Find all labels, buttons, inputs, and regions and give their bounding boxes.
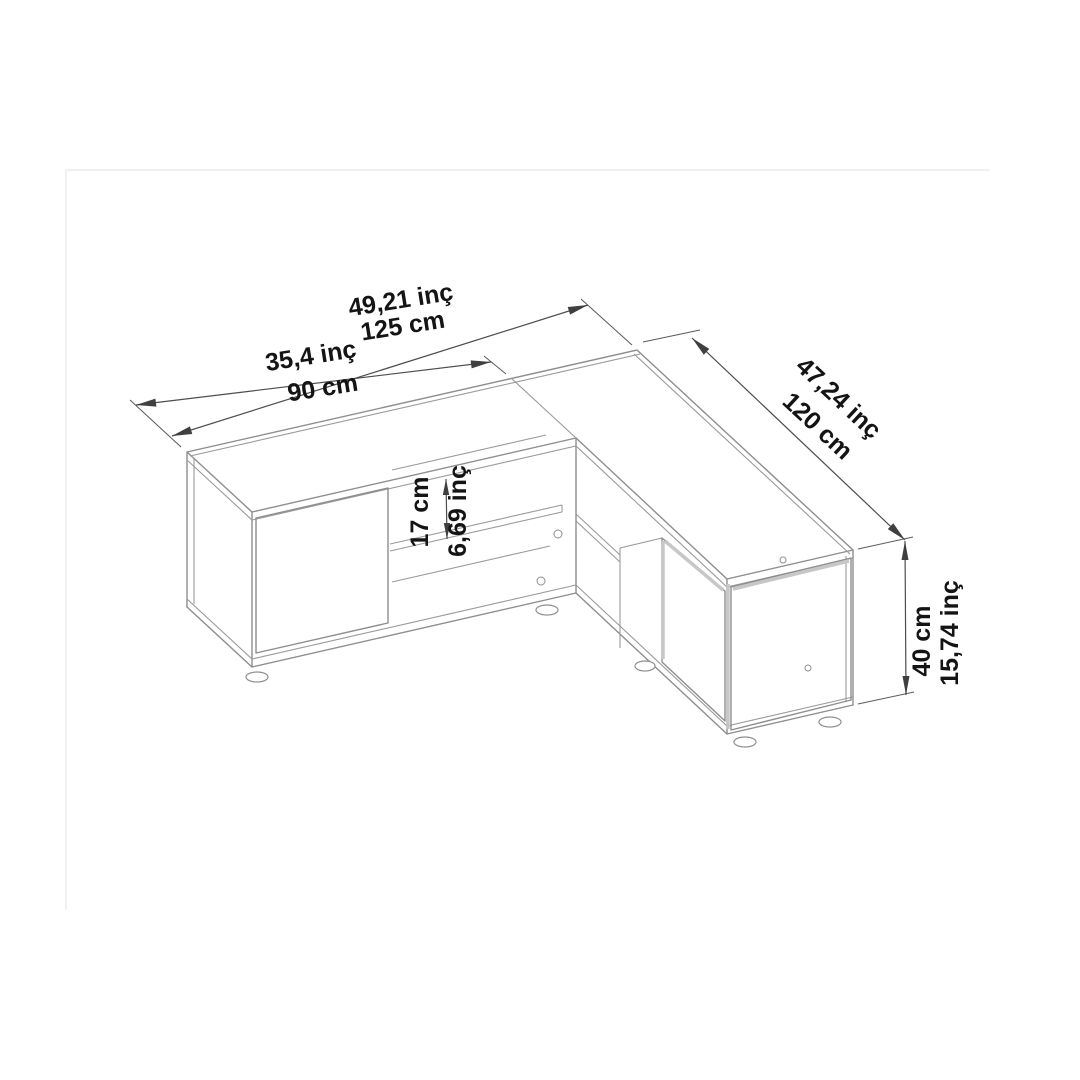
page-frame-line <box>66 170 990 910</box>
dimension-drawing-canvas: 49,21 inç 125 cm 35,4 inç 90 cm 47,24 in… <box>0 0 1080 1080</box>
hardware-holes <box>537 530 811 671</box>
foot <box>536 605 558 615</box>
dimension-label: 6,69 inç <box>444 465 472 557</box>
left-door-panel <box>256 488 388 653</box>
extension-lines <box>130 299 914 704</box>
dimension-height: 40 cm 15,74 inç <box>902 541 965 695</box>
dimension-label: 15,74 inç <box>936 580 964 686</box>
foot <box>734 737 756 747</box>
dimension-label: 40 cm <box>908 606 936 677</box>
dimension-depth-right: 47,24 inç 120 cm <box>692 338 905 540</box>
dimension-label: 90 cm <box>286 369 360 408</box>
furniture-outline <box>187 350 853 734</box>
foot <box>819 717 841 727</box>
foot <box>635 661 655 671</box>
dimension-shelf-gap: 17 cm 6,69 inç <box>406 465 472 557</box>
dimension-label: 17 cm <box>406 477 434 548</box>
dimension-width-left: 35,4 inç 90 cm <box>136 335 491 407</box>
foot <box>246 672 268 682</box>
drawing-page: 49,21 inç 125 cm 35,4 inç 90 cm 47,24 in… <box>0 0 1080 1080</box>
dimension-width-total: 49,21 inç 125 cm <box>172 278 588 436</box>
furniture-feet <box>246 605 841 747</box>
